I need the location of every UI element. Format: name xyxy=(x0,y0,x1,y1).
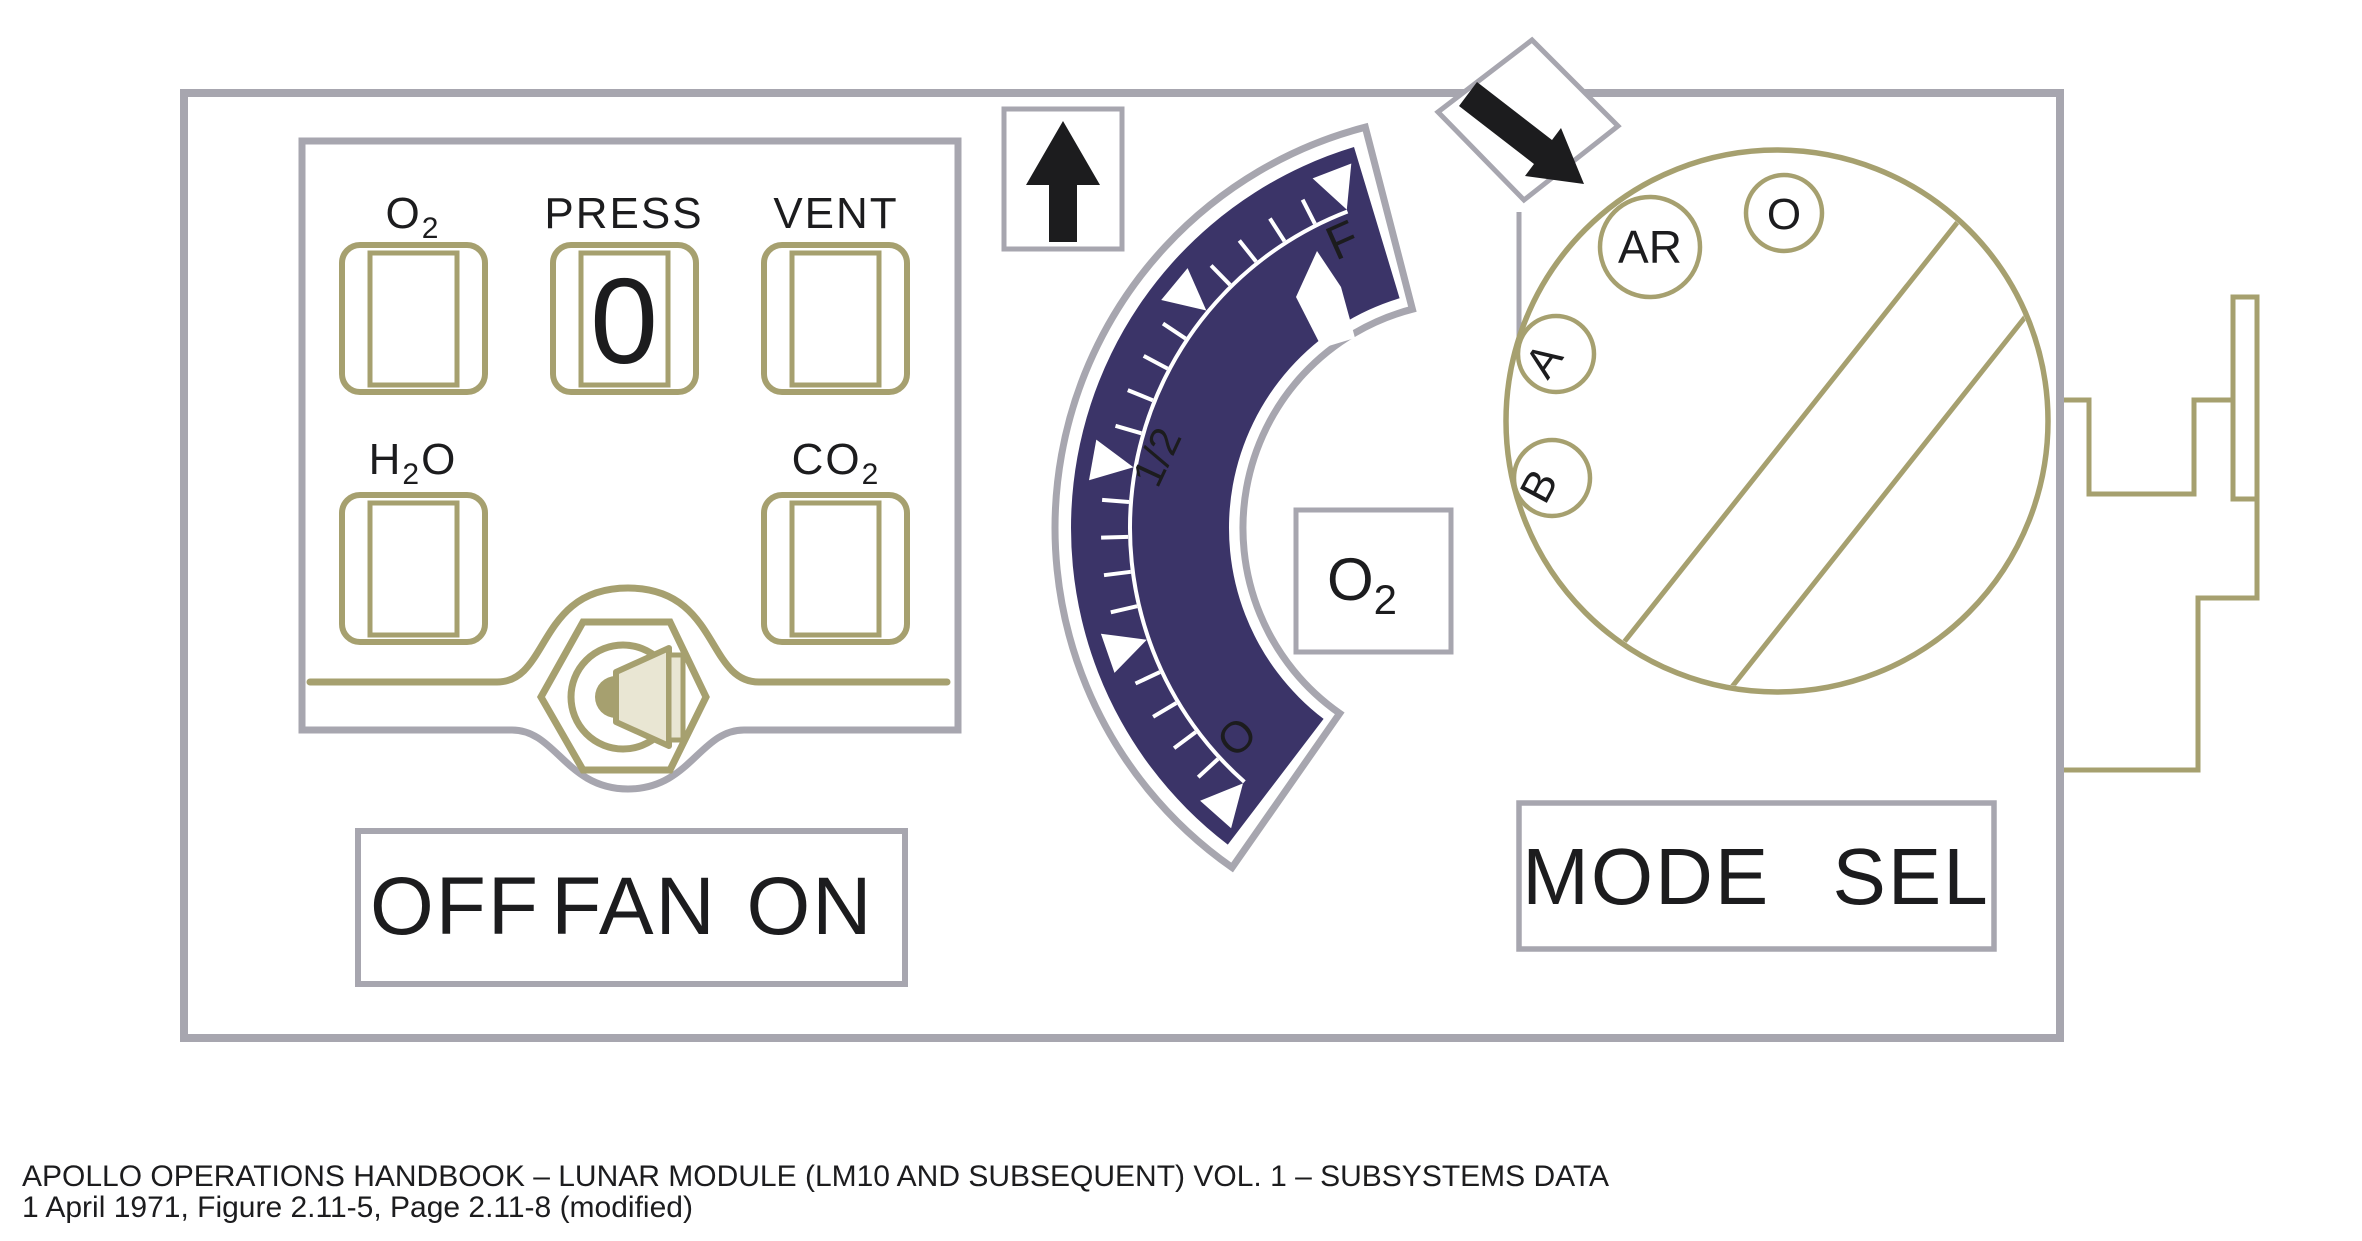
figure-page: O2 PRESS VENT H2O CO2 0 xyxy=(0,0,2362,1241)
vent-indicator-label: VENT xyxy=(773,189,898,238)
caption: APOLLO OPERATIONS HANDBOOK – LUNAR MODUL… xyxy=(22,1160,1609,1224)
fan-switch-off-label: OFF xyxy=(370,861,540,952)
right-connector-bracket xyxy=(2060,297,2257,770)
connector-tab xyxy=(2233,400,2257,499)
connector-top-run xyxy=(2060,400,2233,494)
mode-sel-label-box: MODE SEL xyxy=(1519,803,1994,949)
caption-line-2: 1 April 1971, Figure 2.11-5, Page 2.11-8… xyxy=(22,1191,693,1224)
gauge-tape-label-box: O2 xyxy=(1296,510,1451,652)
press-indicator-value: 0 xyxy=(590,253,658,389)
up-arrow-marker xyxy=(1004,109,1122,249)
fan-switch-label-box: OFF FAN ON xyxy=(358,831,905,984)
press-indicator-label: PRESS xyxy=(544,189,703,238)
position-ar-label: AR xyxy=(1618,221,1682,273)
fan-switch-on-label: ON xyxy=(747,861,874,952)
position-o-label: O xyxy=(1767,190,1801,239)
caption-line-1: APOLLO OPERATIONS HANDBOOK – LUNAR MODUL… xyxy=(22,1160,1609,1193)
mode-sel-label: MODE SEL xyxy=(1522,832,1989,921)
fan-switch-fan-label: FAN xyxy=(551,861,716,952)
connector-outline xyxy=(2060,297,2257,770)
